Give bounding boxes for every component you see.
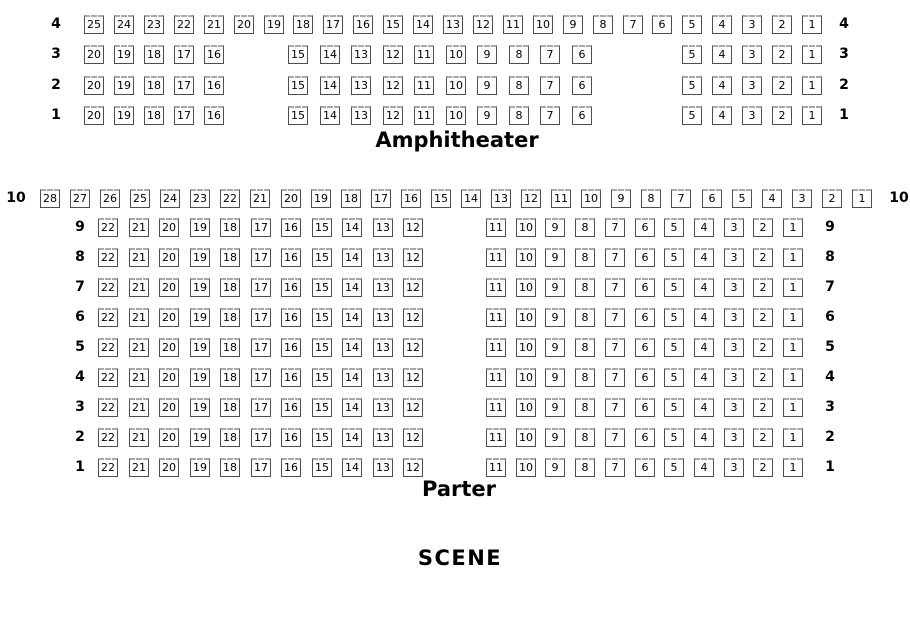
seat-parter-row4-21[interactable]: 21 — [129, 368, 149, 387]
seat-parter-row5-12[interactable]: 12 — [403, 338, 423, 357]
seat-amphitheater-row2-15[interactable]: 15 — [288, 76, 308, 95]
seat-parter-row7-11[interactable]: 11 — [486, 278, 506, 297]
seat-parter-row3-7[interactable]: 7 — [605, 398, 625, 417]
seat-amphitheater-row2-9[interactable]: 9 — [477, 76, 497, 95]
seat-amphitheater-row3-1[interactable]: 1 — [802, 45, 822, 64]
seat-parter-row10-7[interactable]: 7 — [671, 189, 691, 208]
seat-parter-row9-10[interactable]: 10 — [516, 218, 536, 237]
seat-parter-row5-9[interactable]: 9 — [545, 338, 565, 357]
seat-amphitheater-row4-3[interactable]: 3 — [742, 15, 762, 34]
seat-parter-row2-22[interactable]: 22 — [98, 428, 118, 447]
seat-parter-row10-18[interactable]: 18 — [341, 189, 361, 208]
seat-parter-row4-7[interactable]: 7 — [605, 368, 625, 387]
seat-parter-row5-7[interactable]: 7 — [605, 338, 625, 357]
seat-parter-row4-20[interactable]: 20 — [159, 368, 179, 387]
seat-amphitheater-row4-23[interactable]: 23 — [144, 15, 164, 34]
seat-parter-row9-13[interactable]: 13 — [373, 218, 393, 237]
seat-parter-row5-16[interactable]: 16 — [281, 338, 301, 357]
seat-parter-row10-11[interactable]: 11 — [551, 189, 571, 208]
seat-parter-row8-9[interactable]: 9 — [545, 248, 565, 267]
seat-amphitheater-row4-24[interactable]: 24 — [114, 15, 134, 34]
seat-amphitheater-row4-14[interactable]: 14 — [413, 15, 433, 34]
seat-parter-row7-18[interactable]: 18 — [220, 278, 240, 297]
seat-parter-row9-4[interactable]: 4 — [694, 218, 714, 237]
seat-amphitheater-row4-17[interactable]: 17 — [323, 15, 343, 34]
seat-amphitheater-row1-6[interactable]: 6 — [572, 106, 592, 125]
seat-amphitheater-row4-21[interactable]: 21 — [204, 15, 224, 34]
seat-amphitheater-row2-18[interactable]: 18 — [144, 76, 164, 95]
seat-parter-row3-14[interactable]: 14 — [342, 398, 362, 417]
seat-amphitheater-row2-10[interactable]: 10 — [446, 76, 466, 95]
seat-parter-row5-15[interactable]: 15 — [312, 338, 332, 357]
seat-parter-row2-12[interactable]: 12 — [403, 428, 423, 447]
seat-amphitheater-row3-15[interactable]: 15 — [288, 45, 308, 64]
seat-parter-row10-26[interactable]: 26 — [100, 189, 120, 208]
seat-parter-row8-7[interactable]: 7 — [605, 248, 625, 267]
seat-parter-row8-12[interactable]: 12 — [403, 248, 423, 267]
seat-parter-row5-3[interactable]: 3 — [724, 338, 744, 357]
seat-parter-row3-11[interactable]: 11 — [486, 398, 506, 417]
seat-parter-row10-2[interactable]: 2 — [822, 189, 842, 208]
seat-parter-row3-6[interactable]: 6 — [635, 398, 655, 417]
seat-parter-row1-2[interactable]: 2 — [753, 458, 773, 477]
seat-amphitheater-row3-11[interactable]: 11 — [414, 45, 434, 64]
seat-parter-row10-20[interactable]: 20 — [281, 189, 301, 208]
seat-amphitheater-row4-16[interactable]: 16 — [353, 15, 373, 34]
seat-parter-row4-13[interactable]: 13 — [373, 368, 393, 387]
seat-parter-row5-11[interactable]: 11 — [486, 338, 506, 357]
seat-amphitheater-row1-1[interactable]: 1 — [802, 106, 822, 125]
seat-parter-row7-21[interactable]: 21 — [129, 278, 149, 297]
seat-parter-row10-17[interactable]: 17 — [371, 189, 391, 208]
seat-amphitheater-row4-1[interactable]: 1 — [802, 15, 822, 34]
seat-parter-row3-20[interactable]: 20 — [159, 398, 179, 417]
seat-parter-row3-5[interactable]: 5 — [664, 398, 684, 417]
seat-parter-row3-19[interactable]: 19 — [190, 398, 210, 417]
seat-amphitheater-row4-6[interactable]: 6 — [652, 15, 672, 34]
seat-parter-row7-10[interactable]: 10 — [516, 278, 536, 297]
seat-parter-row1-22[interactable]: 22 — [98, 458, 118, 477]
seat-parter-row9-6[interactable]: 6 — [635, 218, 655, 237]
seat-amphitheater-row3-13[interactable]: 13 — [351, 45, 371, 64]
seat-amphitheater-row1-19[interactable]: 19 — [114, 106, 134, 125]
seat-parter-row3-22[interactable]: 22 — [98, 398, 118, 417]
seat-parter-row7-6[interactable]: 6 — [635, 278, 655, 297]
seat-parter-row9-16[interactable]: 16 — [281, 218, 301, 237]
seat-parter-row3-4[interactable]: 4 — [694, 398, 714, 417]
seat-parter-row8-3[interactable]: 3 — [724, 248, 744, 267]
seat-parter-row2-17[interactable]: 17 — [251, 428, 271, 447]
seat-parter-row1-13[interactable]: 13 — [373, 458, 393, 477]
seat-parter-row10-21[interactable]: 21 — [250, 189, 270, 208]
seat-amphitheater-row4-12[interactable]: 12 — [473, 15, 493, 34]
seat-parter-row9-9[interactable]: 9 — [545, 218, 565, 237]
seat-parter-row2-7[interactable]: 7 — [605, 428, 625, 447]
seat-amphitheater-row1-2[interactable]: 2 — [772, 106, 792, 125]
seat-parter-row1-7[interactable]: 7 — [605, 458, 625, 477]
seat-parter-row6-19[interactable]: 19 — [190, 308, 210, 327]
seat-parter-row5-20[interactable]: 20 — [159, 338, 179, 357]
seat-parter-row5-18[interactable]: 18 — [220, 338, 240, 357]
seat-parter-row6-12[interactable]: 12 — [403, 308, 423, 327]
seat-parter-row3-18[interactable]: 18 — [220, 398, 240, 417]
seat-amphitheater-row3-14[interactable]: 14 — [320, 45, 340, 64]
seat-parter-row10-10[interactable]: 10 — [581, 189, 601, 208]
seat-parter-row9-22[interactable]: 22 — [98, 218, 118, 237]
seat-parter-row7-17[interactable]: 17 — [251, 278, 271, 297]
seat-parter-row2-6[interactable]: 6 — [635, 428, 655, 447]
seat-parter-row1-10[interactable]: 10 — [516, 458, 536, 477]
seat-parter-row2-18[interactable]: 18 — [220, 428, 240, 447]
seat-parter-row5-1[interactable]: 1 — [783, 338, 803, 357]
seat-amphitheater-row1-7[interactable]: 7 — [540, 106, 560, 125]
seat-parter-row5-14[interactable]: 14 — [342, 338, 362, 357]
seat-amphitheater-row3-9[interactable]: 9 — [477, 45, 497, 64]
seat-parter-row4-14[interactable]: 14 — [342, 368, 362, 387]
seat-parter-row7-15[interactable]: 15 — [312, 278, 332, 297]
seat-parter-row8-14[interactable]: 14 — [342, 248, 362, 267]
seat-amphitheater-row1-12[interactable]: 12 — [383, 106, 403, 125]
seat-parter-row6-15[interactable]: 15 — [312, 308, 332, 327]
seat-amphitheater-row2-1[interactable]: 1 — [802, 76, 822, 95]
seat-parter-row9-12[interactable]: 12 — [403, 218, 423, 237]
seat-amphitheater-row2-16[interactable]: 16 — [204, 76, 224, 95]
seat-parter-row8-21[interactable]: 21 — [129, 248, 149, 267]
seat-parter-row9-1[interactable]: 1 — [783, 218, 803, 237]
seat-parter-row2-3[interactable]: 3 — [724, 428, 744, 447]
seat-amphitheater-row2-6[interactable]: 6 — [572, 76, 592, 95]
seat-parter-row6-8[interactable]: 8 — [575, 308, 595, 327]
seat-parter-row1-21[interactable]: 21 — [129, 458, 149, 477]
seat-parter-row7-22[interactable]: 22 — [98, 278, 118, 297]
seat-parter-row8-4[interactable]: 4 — [694, 248, 714, 267]
seat-amphitheater-row2-8[interactable]: 8 — [509, 76, 529, 95]
seat-amphitheater-row1-10[interactable]: 10 — [446, 106, 466, 125]
seat-parter-row2-16[interactable]: 16 — [281, 428, 301, 447]
seat-parter-row8-5[interactable]: 5 — [664, 248, 684, 267]
seat-amphitheater-row2-17[interactable]: 17 — [174, 76, 194, 95]
seat-parter-row6-21[interactable]: 21 — [129, 308, 149, 327]
seat-amphitheater-row4-13[interactable]: 13 — [443, 15, 463, 34]
seat-parter-row6-16[interactable]: 16 — [281, 308, 301, 327]
seat-parter-row4-19[interactable]: 19 — [190, 368, 210, 387]
seat-parter-row7-9[interactable]: 9 — [545, 278, 565, 297]
seat-parter-row8-11[interactable]: 11 — [486, 248, 506, 267]
seat-parter-row8-2[interactable]: 2 — [753, 248, 773, 267]
seat-amphitheater-row3-17[interactable]: 17 — [174, 45, 194, 64]
seat-parter-row4-15[interactable]: 15 — [312, 368, 332, 387]
seat-amphitheater-row4-5[interactable]: 5 — [682, 15, 702, 34]
seat-parter-row7-5[interactable]: 5 — [664, 278, 684, 297]
seat-amphitheater-row4-7[interactable]: 7 — [623, 15, 643, 34]
seat-parter-row3-17[interactable]: 17 — [251, 398, 271, 417]
seat-amphitheater-row2-3[interactable]: 3 — [742, 76, 762, 95]
seat-parter-row8-15[interactable]: 15 — [312, 248, 332, 267]
seat-parter-row8-13[interactable]: 13 — [373, 248, 393, 267]
seat-amphitheater-row4-11[interactable]: 11 — [503, 15, 523, 34]
seat-parter-row4-1[interactable]: 1 — [783, 368, 803, 387]
seat-amphitheater-row2-19[interactable]: 19 — [114, 76, 134, 95]
seat-parter-row4-16[interactable]: 16 — [281, 368, 301, 387]
seat-parter-row2-19[interactable]: 19 — [190, 428, 210, 447]
seat-amphitheater-row2-2[interactable]: 2 — [772, 76, 792, 95]
seat-parter-row6-1[interactable]: 1 — [783, 308, 803, 327]
seat-amphitheater-row3-3[interactable]: 3 — [742, 45, 762, 64]
seat-amphitheater-row4-10[interactable]: 10 — [533, 15, 553, 34]
seat-parter-row6-7[interactable]: 7 — [605, 308, 625, 327]
seat-parter-row5-19[interactable]: 19 — [190, 338, 210, 357]
seat-amphitheater-row2-11[interactable]: 11 — [414, 76, 434, 95]
seat-amphitheater-row3-16[interactable]: 16 — [204, 45, 224, 64]
seat-parter-row8-19[interactable]: 19 — [190, 248, 210, 267]
seat-parter-row3-12[interactable]: 12 — [403, 398, 423, 417]
seat-parter-row2-21[interactable]: 21 — [129, 428, 149, 447]
seat-parter-row10-23[interactable]: 23 — [190, 189, 210, 208]
seat-parter-row6-3[interactable]: 3 — [724, 308, 744, 327]
seat-parter-row3-15[interactable]: 15 — [312, 398, 332, 417]
seat-parter-row1-11[interactable]: 11 — [486, 458, 506, 477]
seat-parter-row4-10[interactable]: 10 — [516, 368, 536, 387]
seat-parter-row9-8[interactable]: 8 — [575, 218, 595, 237]
seat-parter-row1-9[interactable]: 9 — [545, 458, 565, 477]
seat-parter-row5-2[interactable]: 2 — [753, 338, 773, 357]
seat-parter-row7-3[interactable]: 3 — [724, 278, 744, 297]
seat-parter-row6-2[interactable]: 2 — [753, 308, 773, 327]
seat-parter-row8-17[interactable]: 17 — [251, 248, 271, 267]
seat-amphitheater-row2-5[interactable]: 5 — [682, 76, 702, 95]
seat-parter-row8-8[interactable]: 8 — [575, 248, 595, 267]
seat-amphitheater-row3-8[interactable]: 8 — [509, 45, 529, 64]
seat-amphitheater-row1-9[interactable]: 9 — [477, 106, 497, 125]
seat-parter-row6-13[interactable]: 13 — [373, 308, 393, 327]
seat-parter-row2-14[interactable]: 14 — [342, 428, 362, 447]
seat-parter-row3-16[interactable]: 16 — [281, 398, 301, 417]
seat-parter-row10-27[interactable]: 27 — [70, 189, 90, 208]
seat-amphitheater-row1-18[interactable]: 18 — [144, 106, 164, 125]
seat-amphitheater-row3-6[interactable]: 6 — [572, 45, 592, 64]
seat-parter-row2-1[interactable]: 1 — [783, 428, 803, 447]
seat-parter-row2-10[interactable]: 10 — [516, 428, 536, 447]
seat-amphitheater-row4-2[interactable]: 2 — [772, 15, 792, 34]
seat-parter-row9-20[interactable]: 20 — [159, 218, 179, 237]
seat-parter-row7-7[interactable]: 7 — [605, 278, 625, 297]
seat-parter-row4-22[interactable]: 22 — [98, 368, 118, 387]
seat-parter-row10-8[interactable]: 8 — [641, 189, 661, 208]
seat-parter-row4-3[interactable]: 3 — [724, 368, 744, 387]
seat-amphitheater-row4-4[interactable]: 4 — [712, 15, 732, 34]
seat-parter-row6-18[interactable]: 18 — [220, 308, 240, 327]
seat-parter-row1-18[interactable]: 18 — [220, 458, 240, 477]
seat-parter-row1-14[interactable]: 14 — [342, 458, 362, 477]
seat-parter-row3-9[interactable]: 9 — [545, 398, 565, 417]
seat-parter-row3-1[interactable]: 1 — [783, 398, 803, 417]
seat-parter-row10-9[interactable]: 9 — [611, 189, 631, 208]
seat-amphitheater-row1-11[interactable]: 11 — [414, 106, 434, 125]
seat-parter-row9-17[interactable]: 17 — [251, 218, 271, 237]
seat-parter-row9-19[interactable]: 19 — [190, 218, 210, 237]
seat-amphitheater-row3-7[interactable]: 7 — [540, 45, 560, 64]
seat-parter-row1-5[interactable]: 5 — [664, 458, 684, 477]
seat-parter-row9-21[interactable]: 21 — [129, 218, 149, 237]
seat-parter-row7-16[interactable]: 16 — [281, 278, 301, 297]
seat-parter-row5-21[interactable]: 21 — [129, 338, 149, 357]
seat-parter-row5-22[interactable]: 22 — [98, 338, 118, 357]
seat-parter-row1-15[interactable]: 15 — [312, 458, 332, 477]
seat-parter-row9-3[interactable]: 3 — [724, 218, 744, 237]
seat-parter-row10-12[interactable]: 12 — [521, 189, 541, 208]
seat-parter-row1-16[interactable]: 16 — [281, 458, 301, 477]
seat-parter-row4-6[interactable]: 6 — [635, 368, 655, 387]
seat-parter-row6-6[interactable]: 6 — [635, 308, 655, 327]
seat-parter-row9-11[interactable]: 11 — [486, 218, 506, 237]
seat-parter-row10-13[interactable]: 13 — [491, 189, 511, 208]
seat-parter-row3-8[interactable]: 8 — [575, 398, 595, 417]
seat-parter-row9-5[interactable]: 5 — [664, 218, 684, 237]
seat-parter-row6-10[interactable]: 10 — [516, 308, 536, 327]
seat-parter-row5-17[interactable]: 17 — [251, 338, 271, 357]
seat-parter-row6-9[interactable]: 9 — [545, 308, 565, 327]
seat-amphitheater-row3-12[interactable]: 12 — [383, 45, 403, 64]
seat-parter-row5-8[interactable]: 8 — [575, 338, 595, 357]
seat-parter-row4-11[interactable]: 11 — [486, 368, 506, 387]
seat-parter-row4-9[interactable]: 9 — [545, 368, 565, 387]
seat-amphitheater-row1-15[interactable]: 15 — [288, 106, 308, 125]
seat-amphitheater-row1-4[interactable]: 4 — [712, 106, 732, 125]
seat-parter-row8-1[interactable]: 1 — [783, 248, 803, 267]
seat-parter-row10-28[interactable]: 28 — [40, 189, 60, 208]
seat-amphitheater-row1-8[interactable]: 8 — [509, 106, 529, 125]
seat-amphitheater-row4-18[interactable]: 18 — [293, 15, 313, 34]
seat-parter-row8-18[interactable]: 18 — [220, 248, 240, 267]
seat-parter-row2-8[interactable]: 8 — [575, 428, 595, 447]
seat-parter-row1-8[interactable]: 8 — [575, 458, 595, 477]
seat-parter-row7-13[interactable]: 13 — [373, 278, 393, 297]
seat-parter-row10-14[interactable]: 14 — [461, 189, 481, 208]
seat-parter-row1-6[interactable]: 6 — [635, 458, 655, 477]
seat-amphitheater-row2-14[interactable]: 14 — [320, 76, 340, 95]
seat-parter-row2-5[interactable]: 5 — [664, 428, 684, 447]
seat-parter-row8-22[interactable]: 22 — [98, 248, 118, 267]
seat-parter-row7-20[interactable]: 20 — [159, 278, 179, 297]
seat-amphitheater-row4-8[interactable]: 8 — [593, 15, 613, 34]
seat-parter-row6-11[interactable]: 11 — [486, 308, 506, 327]
seat-parter-row6-4[interactable]: 4 — [694, 308, 714, 327]
seat-parter-row6-20[interactable]: 20 — [159, 308, 179, 327]
seat-amphitheater-row1-14[interactable]: 14 — [320, 106, 340, 125]
seat-amphitheater-row1-13[interactable]: 13 — [351, 106, 371, 125]
seat-parter-row6-14[interactable]: 14 — [342, 308, 362, 327]
seat-amphitheater-row2-20[interactable]: 20 — [84, 76, 104, 95]
seat-amphitheater-row3-18[interactable]: 18 — [144, 45, 164, 64]
seat-parter-row10-25[interactable]: 25 — [130, 189, 150, 208]
seat-parter-row2-2[interactable]: 2 — [753, 428, 773, 447]
seat-parter-row9-15[interactable]: 15 — [312, 218, 332, 237]
seat-parter-row3-2[interactable]: 2 — [753, 398, 773, 417]
seat-parter-row4-5[interactable]: 5 — [664, 368, 684, 387]
seat-parter-row7-4[interactable]: 4 — [694, 278, 714, 297]
seat-parter-row7-1[interactable]: 1 — [783, 278, 803, 297]
seat-amphitheater-row1-16[interactable]: 16 — [204, 106, 224, 125]
seat-amphitheater-row4-19[interactable]: 19 — [264, 15, 284, 34]
seat-parter-row5-13[interactable]: 13 — [373, 338, 393, 357]
seat-parter-row10-24[interactable]: 24 — [160, 189, 180, 208]
seat-parter-row8-16[interactable]: 16 — [281, 248, 301, 267]
seat-amphitheater-row4-20[interactable]: 20 — [234, 15, 254, 34]
seat-parter-row3-13[interactable]: 13 — [373, 398, 393, 417]
seat-parter-row5-6[interactable]: 6 — [635, 338, 655, 357]
seat-parter-row2-4[interactable]: 4 — [694, 428, 714, 447]
seat-parter-row3-21[interactable]: 21 — [129, 398, 149, 417]
seat-amphitheater-row4-9[interactable]: 9 — [563, 15, 583, 34]
seat-amphitheater-row2-12[interactable]: 12 — [383, 76, 403, 95]
seat-parter-row10-22[interactable]: 22 — [220, 189, 240, 208]
seat-parter-row2-11[interactable]: 11 — [486, 428, 506, 447]
seat-amphitheater-row3-5[interactable]: 5 — [682, 45, 702, 64]
seat-parter-row6-5[interactable]: 5 — [664, 308, 684, 327]
seat-parter-row1-4[interactable]: 4 — [694, 458, 714, 477]
seat-parter-row3-10[interactable]: 10 — [516, 398, 536, 417]
seat-parter-row7-8[interactable]: 8 — [575, 278, 595, 297]
seat-parter-row1-3[interactable]: 3 — [724, 458, 744, 477]
seat-parter-row9-7[interactable]: 7 — [605, 218, 625, 237]
seat-amphitheater-row2-7[interactable]: 7 — [540, 76, 560, 95]
seat-parter-row4-18[interactable]: 18 — [220, 368, 240, 387]
seat-amphitheater-row1-3[interactable]: 3 — [742, 106, 762, 125]
seat-parter-row1-17[interactable]: 17 — [251, 458, 271, 477]
seat-parter-row8-20[interactable]: 20 — [159, 248, 179, 267]
seat-parter-row7-19[interactable]: 19 — [190, 278, 210, 297]
seat-parter-row10-1[interactable]: 1 — [852, 189, 872, 208]
seat-parter-row10-4[interactable]: 4 — [762, 189, 782, 208]
seat-amphitheater-row3-10[interactable]: 10 — [446, 45, 466, 64]
seat-parter-row10-16[interactable]: 16 — [401, 189, 421, 208]
seat-parter-row10-5[interactable]: 5 — [732, 189, 752, 208]
seat-parter-row7-12[interactable]: 12 — [403, 278, 423, 297]
seat-parter-row10-19[interactable]: 19 — [311, 189, 331, 208]
seat-parter-row3-3[interactable]: 3 — [724, 398, 744, 417]
seat-parter-row1-1[interactable]: 1 — [783, 458, 803, 477]
seat-amphitheater-row3-19[interactable]: 19 — [114, 45, 134, 64]
seat-parter-row6-17[interactable]: 17 — [251, 308, 271, 327]
seat-parter-row7-2[interactable]: 2 — [753, 278, 773, 297]
seat-parter-row2-15[interactable]: 15 — [312, 428, 332, 447]
seat-amphitheater-row2-4[interactable]: 4 — [712, 76, 732, 95]
seat-parter-row10-15[interactable]: 15 — [431, 189, 451, 208]
seat-amphitheater-row3-2[interactable]: 2 — [772, 45, 792, 64]
seat-parter-row4-4[interactable]: 4 — [694, 368, 714, 387]
seat-parter-row1-20[interactable]: 20 — [159, 458, 179, 477]
seat-parter-row7-14[interactable]: 14 — [342, 278, 362, 297]
seat-parter-row5-4[interactable]: 4 — [694, 338, 714, 357]
seat-parter-row4-2[interactable]: 2 — [753, 368, 773, 387]
seat-amphitheater-row4-25[interactable]: 25 — [84, 15, 104, 34]
seat-parter-row8-10[interactable]: 10 — [516, 248, 536, 267]
seat-amphitheater-row1-20[interactable]: 20 — [84, 106, 104, 125]
seat-parter-row1-12[interactable]: 12 — [403, 458, 423, 477]
seat-parter-row10-6[interactable]: 6 — [702, 189, 722, 208]
seat-parter-row9-18[interactable]: 18 — [220, 218, 240, 237]
seat-parter-row5-5[interactable]: 5 — [664, 338, 684, 357]
seat-parter-row6-22[interactable]: 22 — [98, 308, 118, 327]
seat-parter-row5-10[interactable]: 10 — [516, 338, 536, 357]
seat-amphitheater-row1-5[interactable]: 5 — [682, 106, 702, 125]
seat-amphitheater-row4-22[interactable]: 22 — [174, 15, 194, 34]
seat-parter-row9-2[interactable]: 2 — [753, 218, 773, 237]
seat-parter-row9-14[interactable]: 14 — [342, 218, 362, 237]
seat-amphitheater-row2-13[interactable]: 13 — [351, 76, 371, 95]
seat-parter-row1-19[interactable]: 19 — [190, 458, 210, 477]
seat-amphitheater-row3-4[interactable]: 4 — [712, 45, 732, 64]
